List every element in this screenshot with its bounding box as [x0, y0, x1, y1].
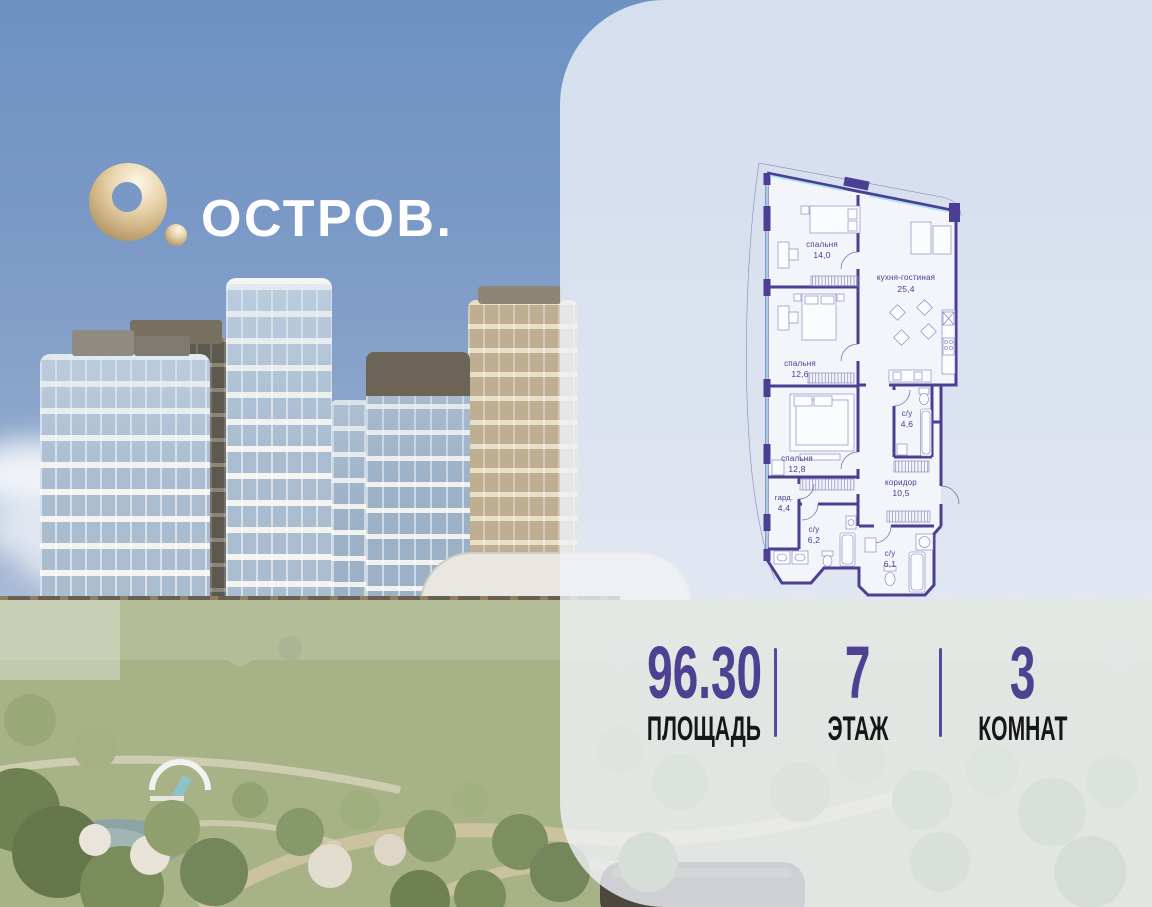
room-area: 4,6 [901, 419, 913, 429]
room-area: 14,0 [813, 250, 830, 260]
stat-area: 96.30 ПЛОЩАДЬ [612, 642, 774, 745]
room-label: спальня [781, 454, 813, 463]
room-label: гард. [775, 493, 793, 502]
room-area: 12,6 [791, 369, 808, 379]
floorplan: спальня 14,0 кухня-гостиная 25,4 спальня… [744, 154, 976, 606]
room-area: 12,8 [788, 464, 805, 474]
room-label: с/у [885, 549, 896, 558]
tower-left-white [40, 354, 210, 610]
room-label: спальня [806, 240, 838, 249]
brand-name: ОСТРОВ. [201, 193, 453, 245]
stat-floor-value: 7 [777, 642, 939, 704]
room-label: коридор [885, 478, 917, 487]
tower-roof-setback [478, 286, 562, 304]
room-label: кухня-гостиная [877, 273, 935, 282]
room-area: 6,2 [808, 535, 820, 545]
stat-rooms-value: 3 [942, 642, 1104, 704]
logo-ring-icon [85, 150, 195, 250]
room-area: 25,4 [897, 284, 914, 294]
room-area: 6,1 [884, 559, 896, 569]
stat-floor-label: ЭТАЖ [777, 713, 939, 745]
apartment-stats: 96.30 ПЛОЩАДЬ 7 ЭТАЖ 3 КОМНАТ [612, 642, 1104, 745]
tower-low-middle [332, 400, 368, 608]
room-label: спальня [784, 359, 816, 368]
stat-rooms-label: КОМНАТ [942, 713, 1104, 745]
room-area: 10,5 [892, 488, 909, 498]
tower-roof-box [72, 330, 134, 356]
stat-floor: 7 ЭТАЖ [777, 642, 939, 745]
tower-center-tall [226, 278, 332, 616]
tower-roof-box [134, 336, 190, 356]
room-label: с/у [809, 525, 820, 534]
stat-rooms: 3 КОМНАТ [942, 642, 1104, 745]
stat-area-label: ПЛОЩАДЬ [612, 713, 774, 745]
tower-dark-crown [366, 352, 470, 396]
room-area: 4,4 [778, 503, 790, 513]
stat-area-value: 96.30 [612, 642, 774, 704]
brand-logo: ОСТРОВ. [85, 150, 515, 262]
room-label: с/у [902, 409, 913, 418]
